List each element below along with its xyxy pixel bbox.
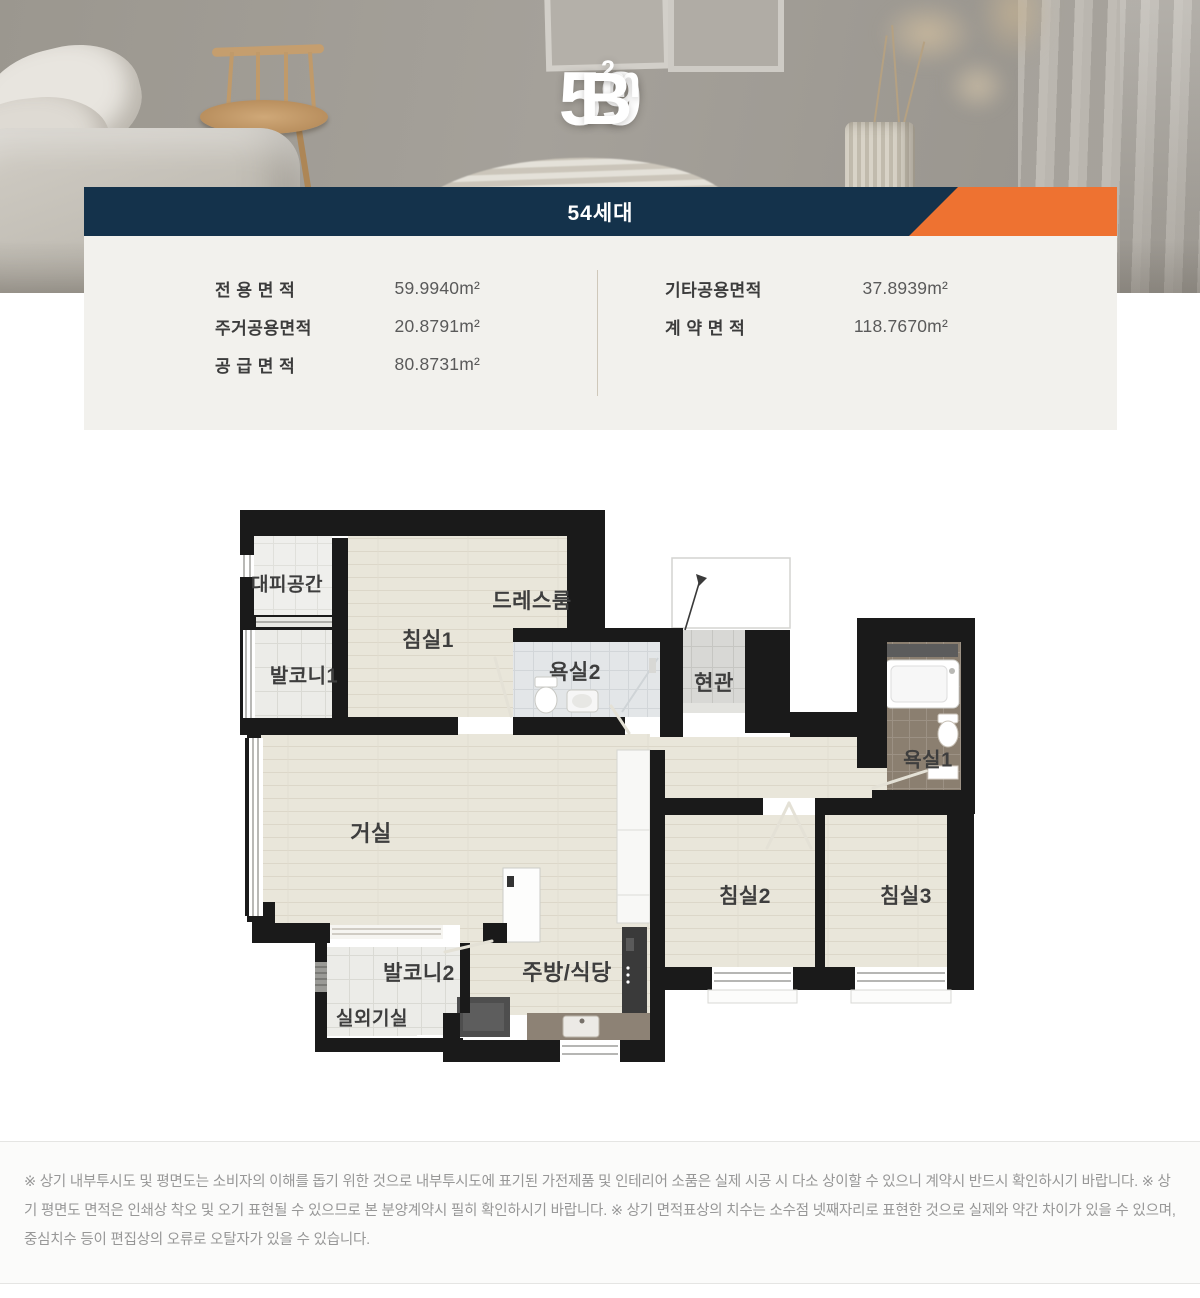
area-row: 계 약 면 적 118.7670m² — [665, 307, 948, 345]
area-info-panel: 전 용 면 적 59.9940m² 주거공용면적 20.8791m² 공 급 면… — [84, 236, 1117, 430]
area-value: 80.8731m² — [395, 354, 480, 375]
area-value: 37.8939m² — [863, 278, 948, 299]
area-label: 주거공용면적 — [215, 314, 312, 339]
area-value: 59.9940m² — [395, 278, 480, 299]
room-label-bath1: 욕실1 — [903, 744, 952, 773]
area-row: 주거공용면적 20.8791m² — [215, 307, 480, 345]
units-count-label: 54세대 — [568, 197, 634, 227]
column-divider — [597, 270, 598, 396]
room-label-balcony2: 발코니2 — [383, 957, 455, 987]
room-label-bedroom3: 침실3 — [880, 880, 932, 910]
room-label-entrance: 현관 — [694, 667, 734, 697]
wall-frame — [668, 0, 784, 72]
room-label-bath2: 욕실2 — [549, 656, 601, 686]
area-table-right: 기타공용면적 37.8939m² 계 약 면 적 118.7670m² — [665, 269, 948, 345]
area-label: 전 용 면 적 — [215, 276, 295, 301]
room-label-bedroom1: 침실1 — [402, 624, 454, 654]
room-label-daepi: 대피공간 — [251, 570, 323, 597]
area-row: 기타공용면적 37.8939m² — [665, 269, 948, 307]
area-row: 전 용 면 적 59.9940m² — [215, 269, 480, 307]
area-label: 계 약 면 적 — [665, 314, 745, 339]
units-banner: 54세대 — [84, 187, 1117, 236]
room-label-outdoor-unit: 실외기실 — [336, 1004, 408, 1031]
chair — [308, 52, 316, 110]
room-label-bedroom2: 침실2 — [719, 880, 771, 910]
disclaimer-footer: ※ 상기 내부투시도 및 평면도는 소비자의 이해를 돕기 위한 것으로 내부투… — [0, 1141, 1200, 1284]
floor-plan: 대피공간 발코니1 침실1 드레스룸 욕실2 현관 욕실1 거실 주방/식당 발… — [230, 500, 990, 1070]
area-value: 118.7670m² — [854, 316, 948, 337]
room-label-kitchen: 주방/식당 — [522, 955, 612, 987]
area-table-left: 전 용 면 적 59.9940m² 주거공용면적 20.8791m² 공 급 면… — [215, 269, 480, 383]
area-label: 공 급 면 적 — [215, 352, 295, 377]
area-row: 공 급 면 적 80.8731m² — [215, 345, 480, 383]
area-value: 20.8791m² — [395, 316, 480, 337]
area-label: 기타공용면적 — [665, 276, 762, 301]
room-label-dressroom: 드레스룸 — [492, 585, 571, 615]
room-label-living: 거실 — [350, 816, 391, 848]
disclaimer-text: ※ 상기 내부투시도 및 평면도는 소비자의 이해를 돕기 위한 것으로 내부투… — [0, 1142, 1200, 1255]
unit-type-letter: B — [579, 56, 632, 141]
room-label-balcony1: 발코니1 — [270, 660, 338, 689]
